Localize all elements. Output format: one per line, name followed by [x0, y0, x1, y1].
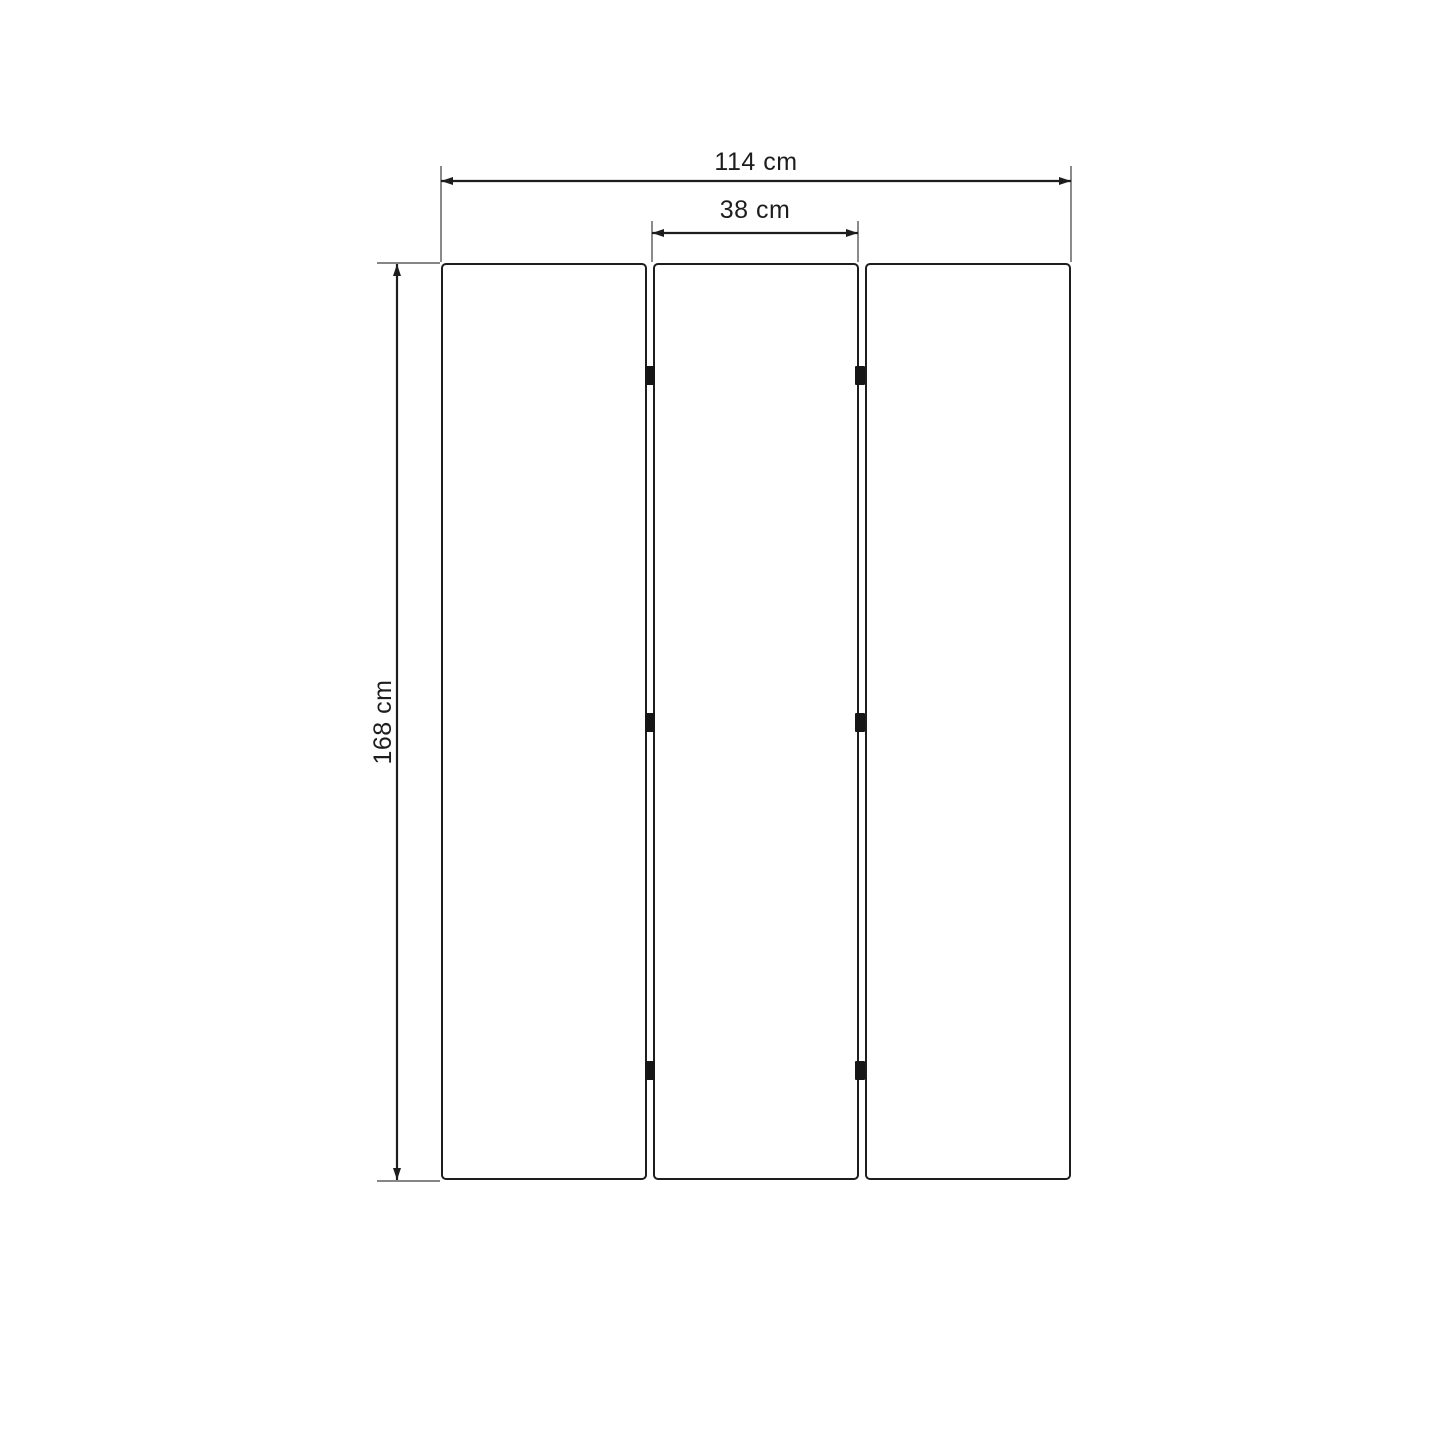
- panel-left: [441, 263, 647, 1180]
- folding-screen: [441, 263, 1071, 1180]
- hinge-icon: [645, 713, 655, 732]
- panel-width-label: 38 cm: [720, 196, 791, 224]
- height-label: 168 cm: [369, 680, 397, 765]
- dimension-diagram: 114 cm 38 cm 168 cm: [0, 0, 1445, 1445]
- dimension-panel-width: 38 cm: [652, 196, 858, 262]
- hinge-icon: [645, 1061, 655, 1080]
- total-width-label: 114 cm: [714, 148, 797, 176]
- hinge-icon: [855, 366, 865, 385]
- dimension-height: 168 cm: [369, 263, 440, 1181]
- panel-middle: [653, 263, 859, 1180]
- hinge-icon: [855, 1061, 865, 1080]
- panel-right: [865, 263, 1071, 1180]
- hinge-icon: [855, 713, 865, 732]
- hinge-icon: [645, 366, 655, 385]
